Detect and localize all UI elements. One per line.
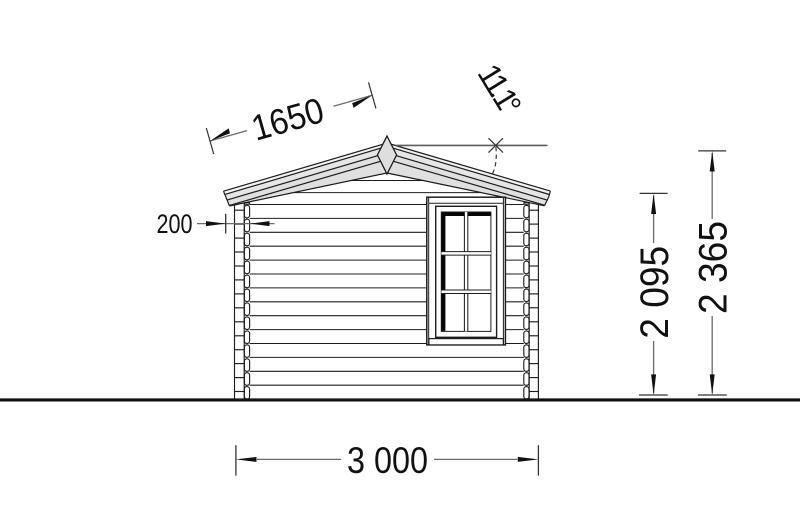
svg-text:200: 200 (157, 209, 193, 239)
svg-text:2 095: 2 095 (633, 246, 677, 339)
svg-text:2 365: 2 365 (691, 221, 735, 314)
svg-text:3 000: 3 000 (347, 440, 428, 481)
